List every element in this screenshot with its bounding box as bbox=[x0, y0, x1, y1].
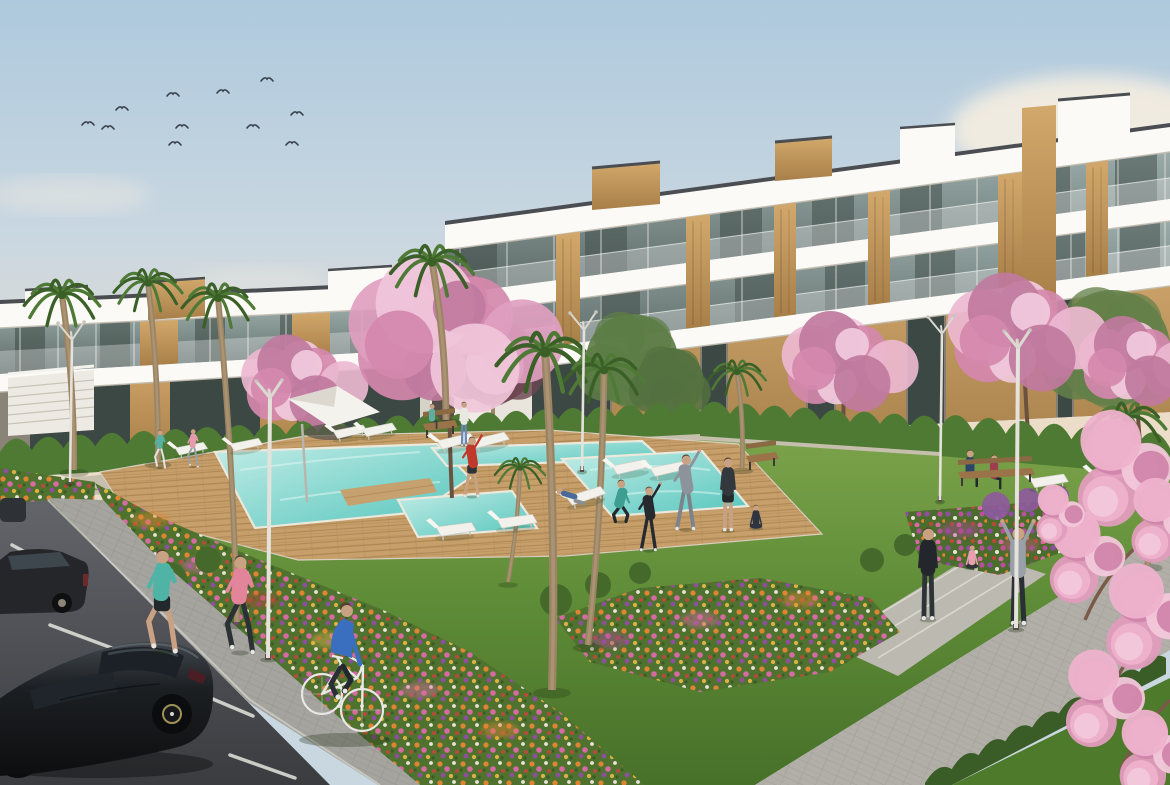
blossom-cluster bbox=[1065, 505, 1083, 523]
blossom-cluster bbox=[1138, 533, 1160, 555]
blossom-cluster bbox=[1115, 632, 1143, 660]
blossom-cluster bbox=[1057, 570, 1082, 595]
shrub bbox=[195, 547, 221, 573]
blossom-cluster bbox=[1109, 563, 1164, 618]
blossom-cluster bbox=[1094, 542, 1123, 571]
blossom-cluster bbox=[1112, 684, 1142, 714]
shrub bbox=[629, 562, 651, 584]
blossom-cluster bbox=[1068, 650, 1119, 701]
blossom-cluster bbox=[1122, 710, 1168, 756]
blossom-cluster bbox=[1087, 486, 1118, 517]
purple-shrub bbox=[982, 492, 1010, 520]
blossom-cluster bbox=[1080, 410, 1141, 471]
shrub bbox=[894, 534, 916, 556]
shrub bbox=[585, 572, 611, 598]
blossom-cluster bbox=[1038, 484, 1069, 515]
blossom-cluster bbox=[1074, 713, 1100, 739]
scene-canvas bbox=[0, 0, 1170, 785]
shrub bbox=[860, 548, 884, 572]
blossom-cluster bbox=[1041, 523, 1057, 539]
rendered-image: 3D architectural rendering of a modern w… bbox=[0, 0, 1170, 785]
